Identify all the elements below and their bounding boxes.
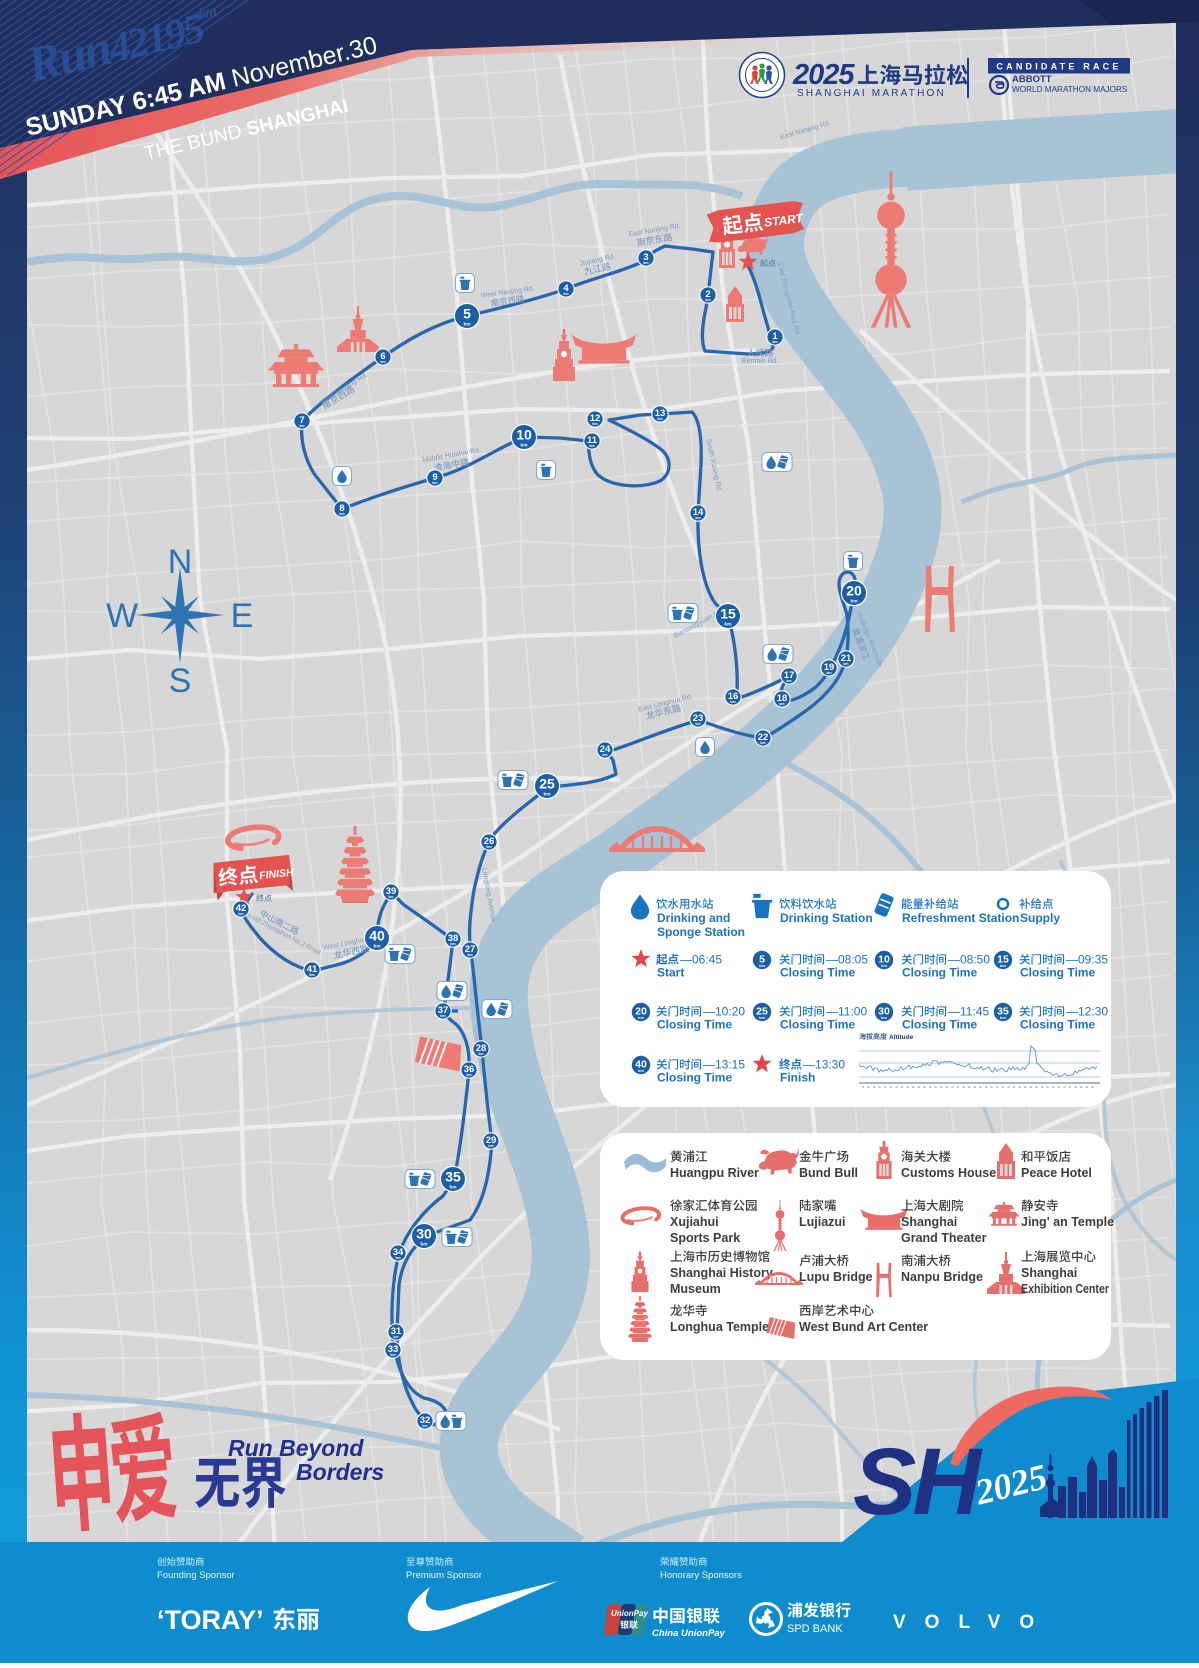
svg-text:km: km [544,791,551,797]
svg-text:km: km [393,1335,398,1339]
svg-text:—08:50: —08:50 [948,953,990,967]
svg-text:km: km [563,292,568,296]
svg-text:Renmin Rd.: Renmin Rd. [742,358,779,365]
svg-text:Drinking and: Drinking and [657,911,730,925]
svg-text:10: 10 [516,427,532,443]
svg-text:30: 30 [416,1226,432,1242]
svg-text:km: km [779,702,784,706]
svg-text:km: km [589,444,594,448]
svg-text:Exhibition Center: Exhibition Center [1021,1282,1109,1296]
svg-text:35: 35 [445,1169,461,1185]
svg-text:km: km [467,953,472,957]
svg-text:UnionPay: UnionPay [611,1609,648,1618]
svg-text:km: km [730,700,735,704]
svg-text:km: km [786,679,791,683]
svg-text:km: km [881,1015,887,1020]
svg-text:km: km [695,722,700,726]
svg-text:5: 5 [463,306,471,322]
svg-text:Lupu Bridge: Lupu Bridge [799,1270,873,1284]
svg-text:km: km [1000,1015,1006,1020]
svg-text:—09:35: —09:35 [1066,953,1108,967]
svg-text:km: km [521,442,528,448]
svg-text:km: km [450,942,455,946]
svg-text:—10:20: —10:20 [703,1005,745,1019]
svg-text:Closing Time: Closing Time [1020,966,1095,980]
svg-text:Sponge Station: Sponge Station [657,925,745,939]
svg-text:Closing Time: Closing Time [657,1018,732,1032]
svg-text:km: km [592,422,597,426]
svg-text:E: E [231,597,254,635]
svg-text:Founding Sponsor: Founding Sponsor [157,1570,235,1581]
svg-text:SH: SH [853,1429,983,1535]
svg-text:km: km [309,973,314,977]
svg-text:Lujiazui: Lujiazui [799,1215,846,1229]
svg-text:Sports Park: Sports Park [670,1231,740,1245]
svg-text:Customs House: Customs House [901,1166,996,1180]
svg-text:km: km [725,621,732,627]
svg-text:km: km [826,671,831,675]
svg-text:km: km [390,1353,395,1357]
svg-text:Nanpu Bridge: Nanpu Bridge [901,1270,983,1284]
svg-text:km: km [388,895,393,899]
svg-text:—13:30: —13:30 [803,1058,845,1072]
svg-text:Start: Start [657,966,684,980]
svg-text:Bund Bull: Bund Bull [799,1166,858,1180]
svg-text:Huangpu River: Huangpu River [670,1166,759,1180]
svg-text:25: 25 [539,776,555,792]
svg-text:Museum: Museum [670,1282,721,1296]
svg-text:—13:15: —13:15 [703,1058,745,1072]
svg-text:China UnionPay: China UnionPay [652,1628,726,1639]
svg-text:‘TORAY’: ‘TORAY’ [157,1605,264,1635]
svg-text:West Bund Art Center: West Bund Art Center [799,1320,928,1334]
svg-text:20: 20 [846,583,862,599]
svg-text:Xujiahui: Xujiahui [670,1215,719,1229]
svg-text:km: km [760,741,765,745]
svg-text:—11:00: —11:00 [826,1005,867,1019]
svg-text:km: km [339,512,344,516]
svg-text:N: N [168,543,193,581]
svg-text:Closing Time: Closing Time [902,966,977,980]
svg-text:km: km [395,1256,400,1260]
svg-text:Refreshment Station: Refreshment Station [902,911,1019,925]
svg-text:Borders: Borders [296,1459,384,1485]
svg-text:Supply: Supply [1020,911,1060,925]
svg-text:km: km [466,1073,471,1077]
svg-text:km: km [374,943,381,949]
svg-text:km: km [440,1014,445,1018]
svg-text:km: km [638,1015,644,1020]
svg-text:km: km [881,963,887,968]
svg-text:km: km [851,598,858,604]
svg-text:km: km [478,1052,483,1056]
svg-text:km: km [422,1424,427,1428]
svg-text:km: km [299,424,304,428]
svg-text:CANDIDATE RACE: CANDIDATE RACE [996,62,1121,72]
svg-text:km: km [705,298,710,302]
svg-text:W: W [106,597,138,635]
svg-text:km: km [1000,963,1006,968]
svg-text:S: S [169,662,192,700]
svg-text:Closing Time: Closing Time [780,1018,855,1032]
svg-text:km: km [657,417,662,421]
svg-text:km: km [486,845,491,849]
svg-text:km: km [772,340,777,344]
svg-text:km: km [488,1144,493,1148]
svg-text:km: km [643,261,648,265]
svg-text:km: km [421,1241,428,1247]
svg-text:km: km [759,963,765,968]
svg-text:Closing Time: Closing Time [1020,1018,1095,1032]
svg-text:Altitude: Altitude [889,1034,914,1041]
svg-text:km: km [695,516,700,520]
svg-text:WORLD MARATHON MAJORS: WORLD MARATHON MAJORS [1012,85,1128,94]
svg-text:Jing' an Temple: Jing' an Temple [1021,1215,1114,1229]
svg-text:VOLVO: VOLVO [893,1612,1053,1633]
svg-text:15: 15 [720,606,736,622]
svg-text:Shanghai History: Shanghai History [670,1266,773,1280]
svg-text:Shanghai: Shanghai [1021,1266,1077,1280]
svg-text:Finish: Finish [780,1071,815,1085]
svg-text:km: km [843,662,848,666]
svg-text:SHANGHAI MARATHON: SHANGHAI MARATHON [797,88,946,99]
svg-text:—12:30: —12:30 [1066,1005,1108,1019]
svg-text:km: km [432,481,437,485]
svg-text:km: km [638,1068,644,1073]
svg-text:Closing Time: Closing Time [657,1071,732,1085]
svg-text:km: km [759,1015,765,1020]
svg-text:40: 40 [369,928,385,944]
svg-text:2025: 2025 [792,59,855,91]
svg-text:ABBOTT: ABBOTT [1012,74,1052,85]
svg-text:Peace Hotel: Peace Hotel [1021,1166,1092,1180]
svg-text:km: km [380,360,385,364]
svg-text:Honorary Sponsors: Honorary Sponsors [660,1570,742,1581]
svg-text:Closing Time: Closing Time [902,1018,977,1032]
svg-text:Grand Theater: Grand Theater [901,1231,987,1245]
svg-text:Closing Time: Closing Time [780,966,855,980]
svg-text:—11:45: —11:45 [948,1005,989,1019]
svg-text:—06:45: —06:45 [680,953,722,967]
svg-text:km: km [464,321,471,327]
svg-text:km: km [450,1184,457,1190]
svg-text:Run Beyond: Run Beyond [228,1435,364,1461]
svg-text:—08:05: —08:05 [826,953,868,967]
svg-text:Longhua Temple: Longhua Temple [670,1320,769,1334]
svg-text:km: km [602,753,607,757]
svg-text:Drinking Station: Drinking Station [780,911,873,925]
svg-text:SPD BANK: SPD BANK [787,1623,843,1635]
svg-text:Shanghai: Shanghai [901,1215,957,1229]
svg-text:Premium Sponsor: Premium Sponsor [406,1570,482,1581]
svg-text:km: km [238,912,243,916]
